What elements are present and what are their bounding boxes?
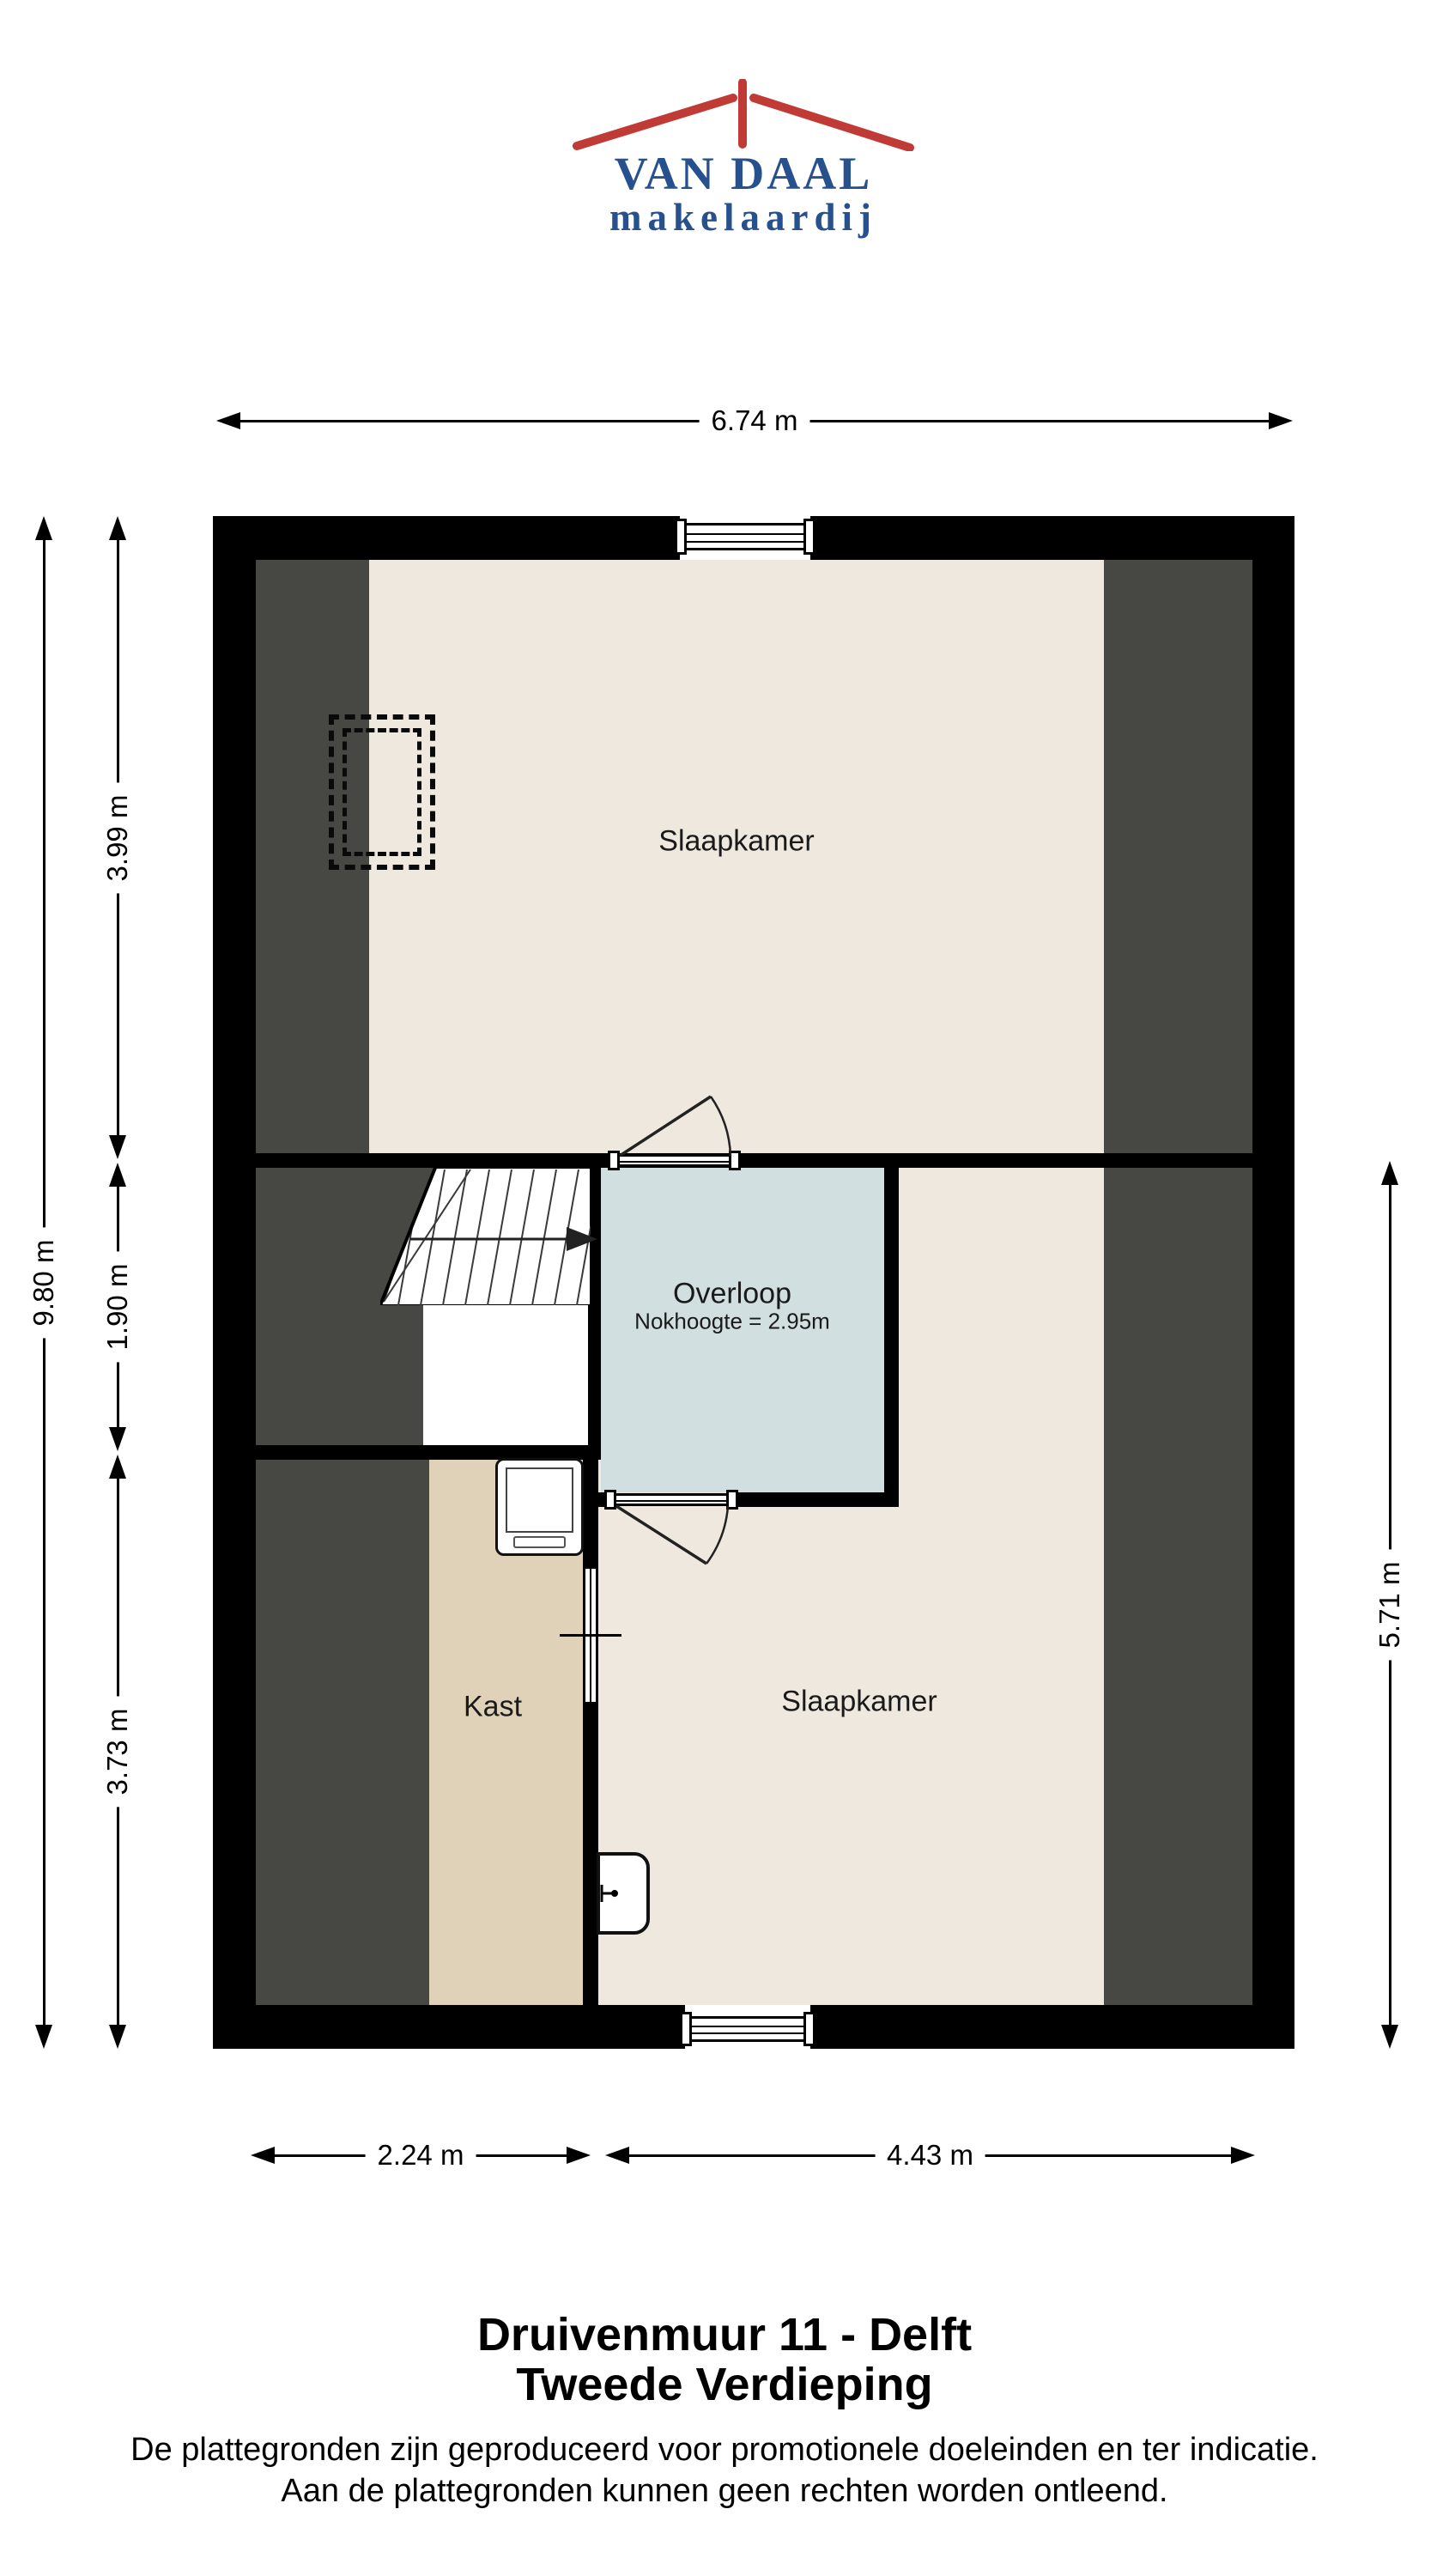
door-top-swing (620, 1097, 731, 1156)
dim-bottom-right: 4.43 m (605, 2142, 1255, 2169)
room-label-slaapkamer-top: Slaapkamer (658, 825, 814, 859)
dim-left-total: 9.80 m (31, 516, 57, 2049)
room-label-slaapkamer-bottom: Slaapkamer (781, 1686, 937, 1719)
disclaimer-line1: De plattegronden zijn geproduceerd voor … (0, 2432, 1449, 2469)
dim-left-segment-top: 3.99 m (105, 516, 130, 1159)
page-title-line1: Druivenmuur 11 - Delft (0, 2308, 1449, 2361)
door-bottom-swing (616, 1506, 728, 1564)
dim-left-segment-middle: 1.90 m (105, 1163, 130, 1451)
room-label-overloop: Overloop (673, 1278, 791, 1311)
room-label-kast: Kast (464, 1691, 522, 1724)
disclaimer-line2: Aan de plattegronden kunnen geen rechten… (0, 2473, 1449, 2510)
faucet-icon (602, 1885, 618, 1902)
dim-top-width: 6.74 m (216, 407, 1293, 434)
dim-right-height: 5.71 m (1377, 1161, 1403, 2049)
dim-bottom-left: 2.24 m (251, 2142, 591, 2169)
page-title-line2: Tweede Verdieping (0, 2358, 1449, 2411)
dim-left-segment-bottom: 3.73 m (105, 1455, 130, 2049)
floorplan-page: VAN DAAL makelaardij (0, 0, 1449, 2576)
room-label-nokhoogte: Nokhoogte = 2.95m (634, 1309, 830, 1335)
